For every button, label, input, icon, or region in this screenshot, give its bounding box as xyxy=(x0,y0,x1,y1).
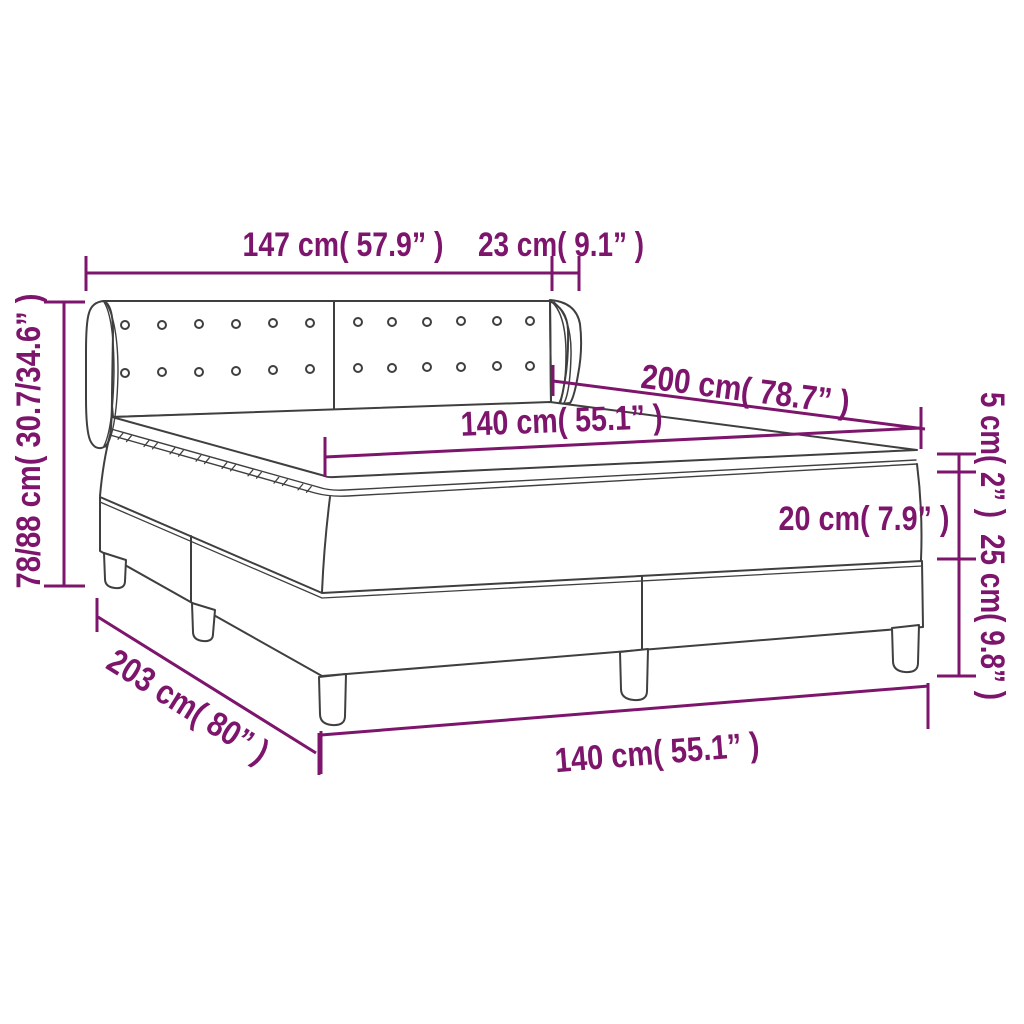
svg-text:200 cm( 78.7” ): 200 cm( 78.7” ) xyxy=(639,358,852,423)
svg-text:23 cm( 9.1” ): 23 cm( 9.1” ) xyxy=(478,226,644,264)
svg-text:203 cm( 80” ): 203 cm( 80” ) xyxy=(100,642,275,771)
svg-text:140 cm( 55.1” ): 140 cm( 55.1” ) xyxy=(460,398,663,444)
svg-text:20 cm( 7.9” ): 20 cm( 7.9” ) xyxy=(779,500,950,538)
svg-text:147 cm( 57.9” ): 147 cm( 57.9” ) xyxy=(243,226,444,264)
svg-text:25 cm( 9.8” ): 25 cm( 9.8” ) xyxy=(973,534,1011,700)
svg-text:5 cm( 2” ): 5 cm( 2” ) xyxy=(973,392,1011,518)
svg-text:140 cm( 55.1” ): 140 cm( 55.1” ) xyxy=(553,726,760,780)
svg-text:78/88 cm( 30.7/34.6” ): 78/88 cm( 30.7/34.6” ) xyxy=(10,294,48,589)
